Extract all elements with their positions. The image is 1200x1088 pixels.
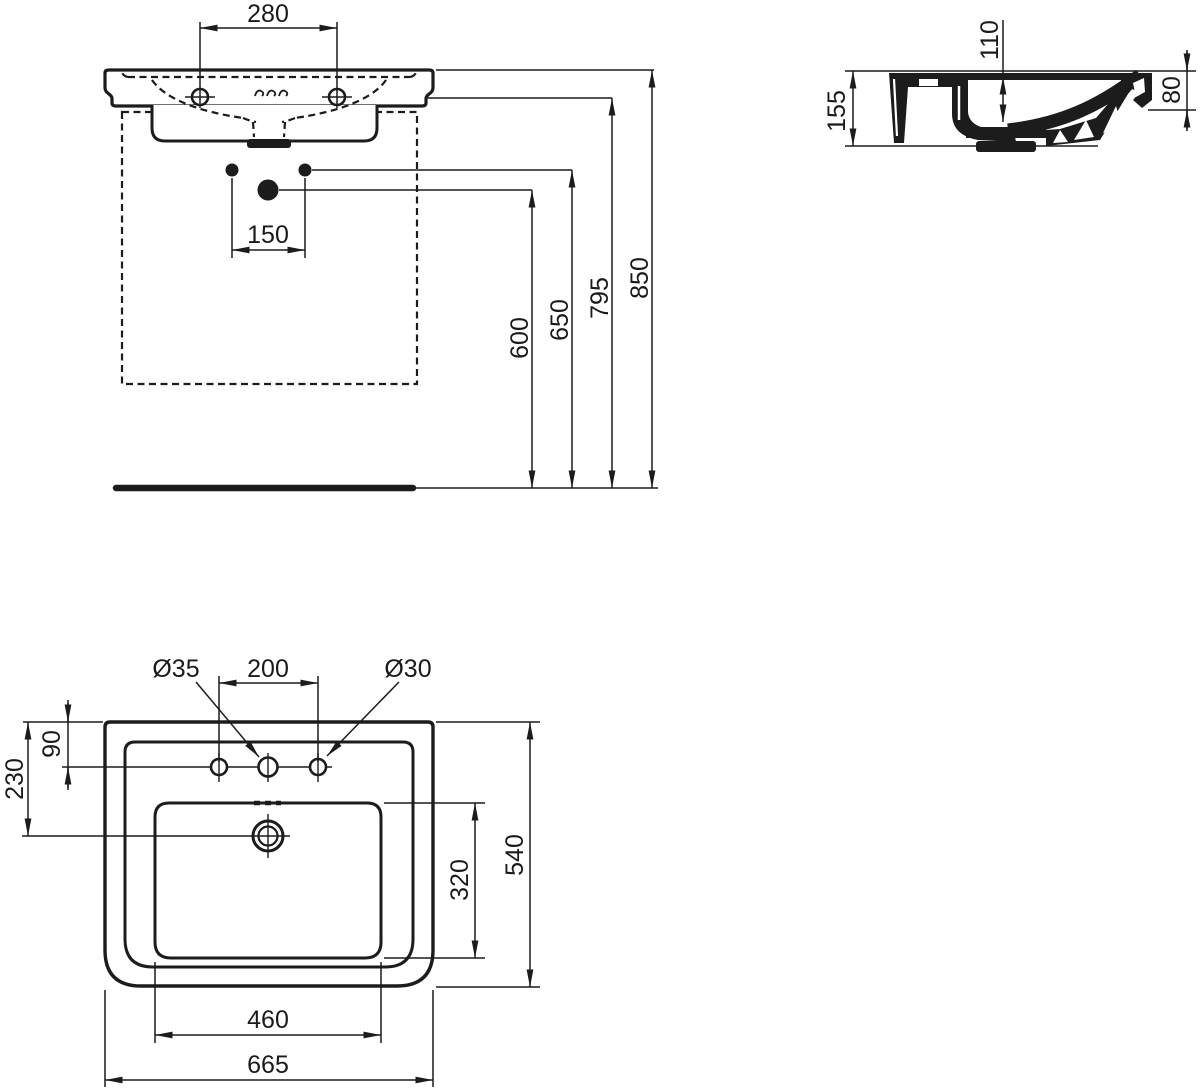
dim-apron-height: 80	[1158, 50, 1187, 131]
dim-label-dia30: Ø30	[384, 655, 431, 683]
front-view: 280 150 600 650 795 850	[105, 0, 658, 488]
dim-rim-height: 850	[436, 70, 654, 488]
washbasin-dimension-drawing: 280 150 600 650 795 850	[0, 0, 1200, 1088]
dim-label-150: 150	[247, 221, 289, 249]
section-drain-cup	[976, 141, 1036, 152]
drain-trap-front	[247, 139, 291, 148]
dim-overall-depth: 540	[436, 722, 540, 987]
dim-label-320: 320	[446, 859, 474, 901]
dim-label-155: 155	[823, 90, 851, 132]
fixing-point-right	[299, 164, 312, 177]
side-section-view: 155 110 80	[823, 20, 1196, 152]
basin-front-outline	[105, 70, 433, 106]
dim-label-90: 90	[38, 730, 66, 758]
dim-fixing-height: 650	[312, 170, 574, 488]
bowl-front-outline	[152, 105, 377, 141]
dim-edge-to-overflow: 230	[1, 722, 29, 836]
section-drain-boss	[966, 127, 1046, 138]
plan-view: 200 Ø35 Ø30 90 230 540	[1, 655, 540, 1087]
dim-label-200-plan: 200	[247, 655, 289, 683]
dim-label-dia35: Ø35	[152, 655, 199, 683]
technical-drawing-page: 280 150 600 650 795 850	[0, 0, 1200, 1088]
dim-label-280: 280	[247, 0, 289, 28]
dim-label-80: 80	[1158, 76, 1186, 104]
dim-label-230: 230	[1, 758, 29, 800]
dim-overall-width: 665	[105, 990, 433, 1087]
dim-drain-height: 600	[279, 190, 534, 488]
dim-label-540: 540	[501, 834, 529, 876]
dim-underside-height: 795	[427, 98, 614, 488]
dim-label-600: 600	[506, 317, 534, 359]
dim-label-650: 650	[546, 299, 574, 341]
dim-label-795: 795	[586, 277, 614, 319]
dim-label-460: 460	[247, 1006, 289, 1034]
dim-edge-to-holes: 90	[23, 700, 103, 790]
fixing-point-left	[226, 164, 239, 177]
dim-body-height: 155	[823, 71, 853, 146]
rim-notch	[919, 79, 938, 86]
dim-label-110: 110	[976, 20, 1004, 60]
drain-outlet-point	[258, 180, 279, 201]
dim-label-665: 665	[247, 1051, 289, 1079]
dim-label-850: 850	[626, 257, 654, 299]
